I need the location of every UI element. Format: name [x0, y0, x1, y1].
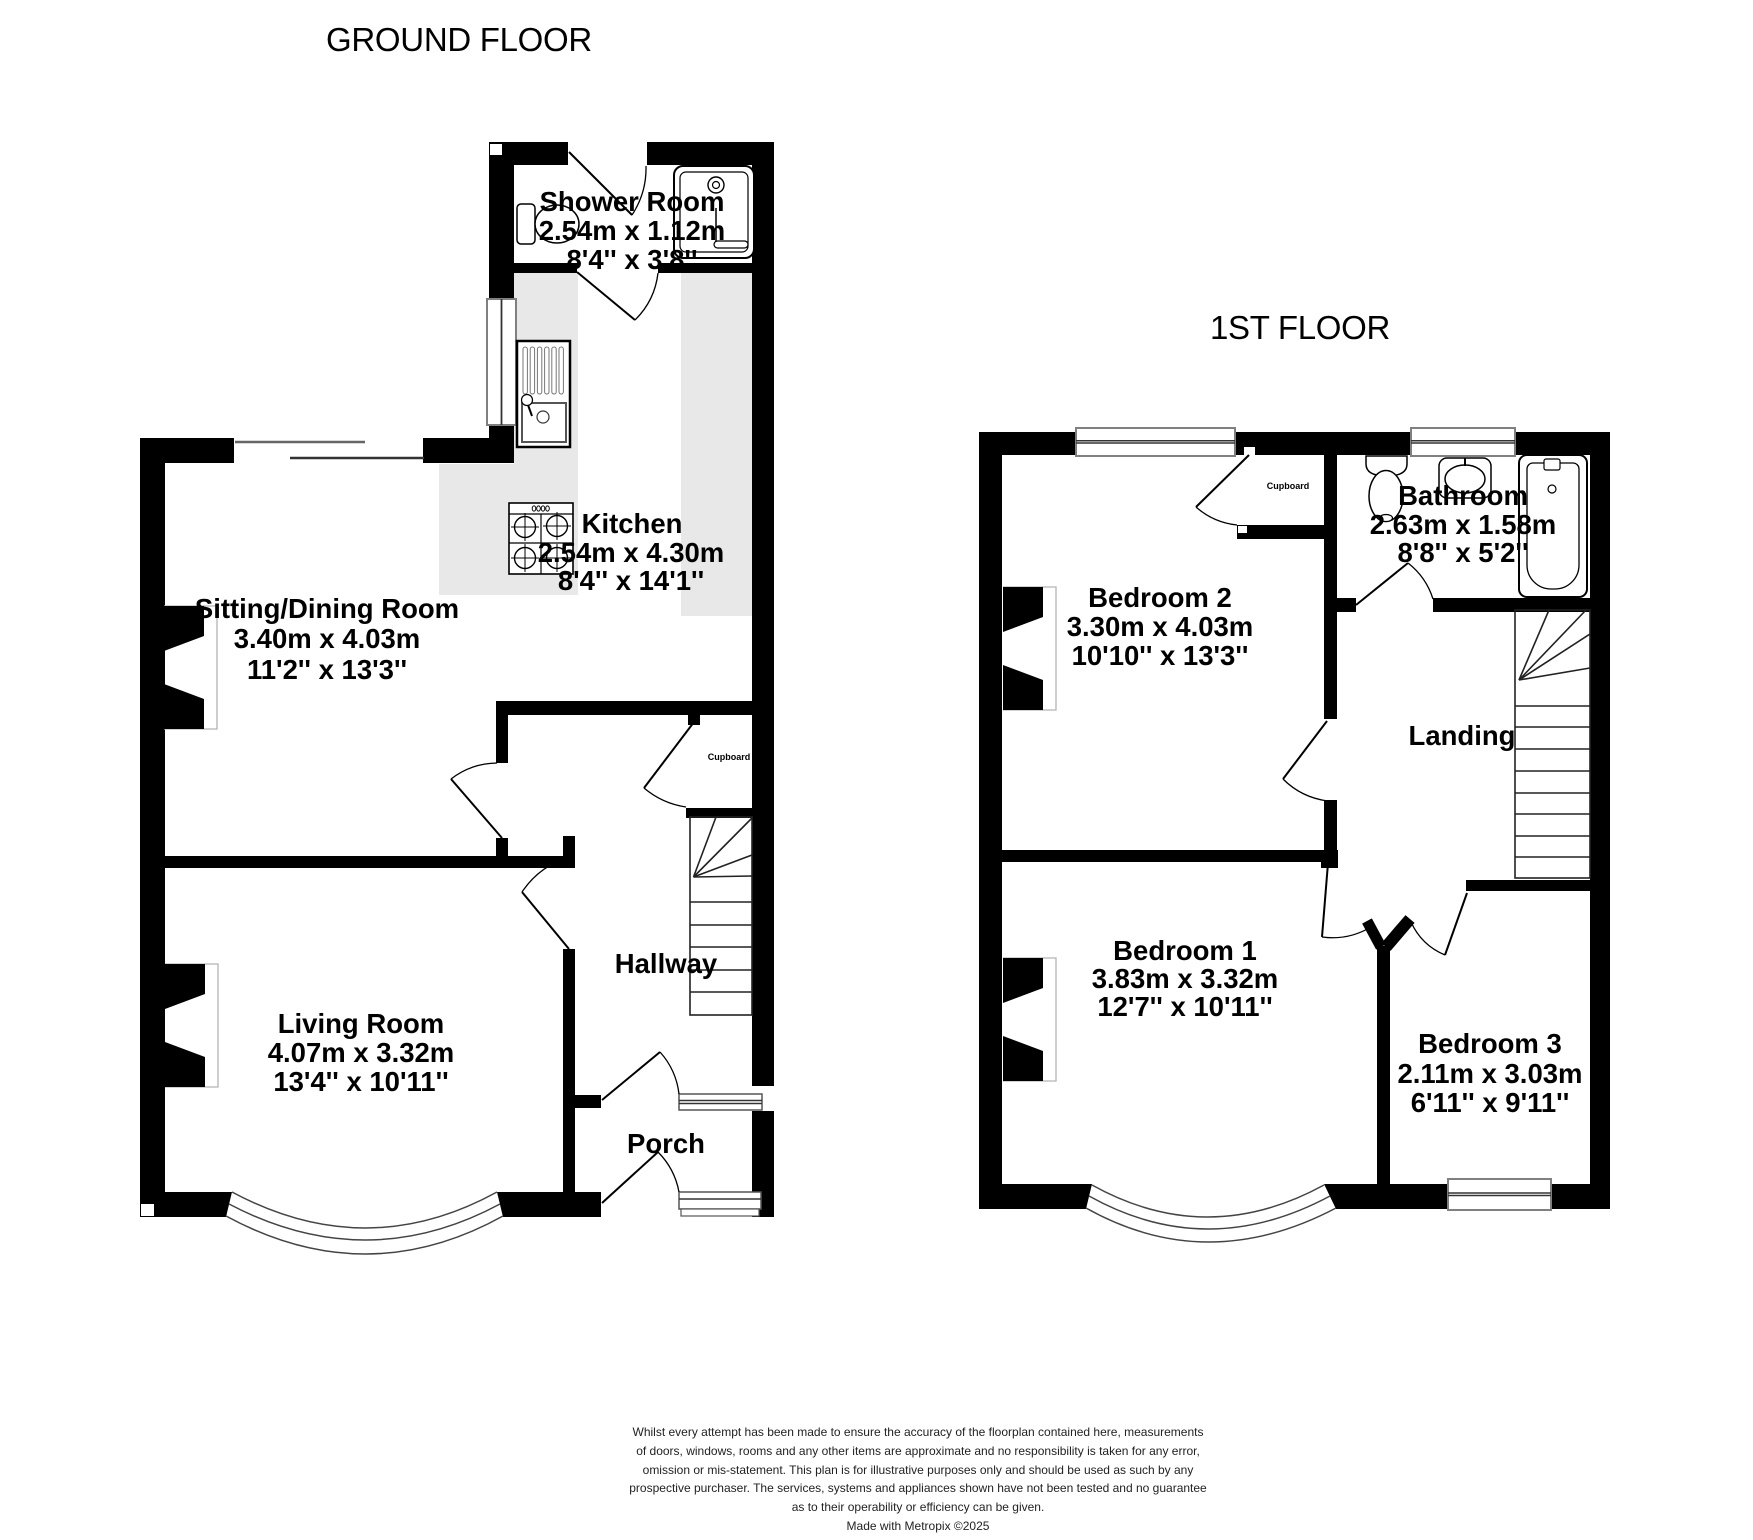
svg-text:as to their operability or eff: as to their operability or efficiency ca…	[792, 1500, 1045, 1514]
svg-text:Cupboard: Cupboard	[708, 752, 751, 762]
svg-text:omission or mis-statement. Thi: omission or mis-statement. This plan is …	[643, 1463, 1194, 1477]
svg-text:1ST FLOOR: 1ST FLOOR	[1210, 309, 1390, 346]
svg-text:13'4'' x 10'11'': 13'4'' x 10'11''	[273, 1066, 448, 1097]
svg-text:6'11'' x 9'11'': 6'11'' x 9'11''	[1411, 1087, 1570, 1118]
svg-text:Cupboard: Cupboard	[1267, 481, 1310, 491]
svg-text:Made with Metropix ©2025: Made with Metropix ©2025	[847, 1519, 990, 1533]
svg-text:2.54m x 4.30m: 2.54m x 4.30m	[538, 537, 725, 568]
svg-text:Bedroom 2: Bedroom 2	[1088, 582, 1232, 613]
svg-text:2.11m x 3.03m: 2.11m x 3.03m	[1397, 1058, 1582, 1089]
svg-text:GROUND FLOOR: GROUND FLOOR	[326, 21, 592, 58]
svg-text:Shower Room: Shower Room	[540, 186, 725, 217]
svg-text:2.54m x 1.12m: 2.54m x 1.12m	[539, 215, 726, 246]
svg-text:4.07m x 3.32m: 4.07m x 3.32m	[268, 1037, 455, 1068]
svg-text:2.63m x 1.58m: 2.63m x 1.58m	[1370, 509, 1557, 540]
svg-text:Hallway: Hallway	[615, 948, 718, 979]
svg-text:8'4'' x 3'8'': 8'4'' x 3'8''	[567, 244, 698, 275]
svg-text:Kitchen: Kitchen	[582, 508, 683, 539]
svg-text:3.40m x 4.03m: 3.40m x 4.03m	[234, 623, 421, 654]
svg-text:12'7'' x 10'11'': 12'7'' x 10'11''	[1097, 991, 1272, 1022]
svg-text:Landing: Landing	[1409, 720, 1516, 751]
svg-text:10'10'' x 13'3'': 10'10'' x 13'3''	[1072, 640, 1249, 671]
svg-text:Living Room: Living Room	[278, 1008, 445, 1039]
svg-text:Porch: Porch	[627, 1128, 705, 1159]
svg-text:3.30m x 4.03m: 3.30m x 4.03m	[1067, 611, 1254, 642]
svg-text:Bathroom: Bathroom	[1398, 480, 1528, 511]
svg-text:prospective purchaser. The ser: prospective purchaser. The services, sys…	[629, 1481, 1207, 1495]
svg-text:8'4'' x 14'1'': 8'4'' x 14'1''	[558, 565, 704, 596]
svg-text:Whilst every attempt has been: Whilst every attempt has been made to en…	[633, 1425, 1204, 1439]
svg-text:Sitting/Dining Room: Sitting/Dining Room	[195, 593, 459, 624]
svg-text:11'2'' x 13'3'': 11'2'' x 13'3''	[247, 654, 407, 685]
svg-text:Bedroom 1: Bedroom 1	[1113, 935, 1257, 966]
svg-text:Bedroom 3: Bedroom 3	[1418, 1028, 1562, 1059]
svg-text:8'8'' x 5'2'': 8'8'' x 5'2''	[1398, 537, 1529, 568]
svg-text:of doors, windows, rooms and a: of doors, windows, rooms and any other i…	[636, 1444, 1200, 1458]
svg-text:3.83m x 3.32m: 3.83m x 3.32m	[1092, 963, 1279, 994]
